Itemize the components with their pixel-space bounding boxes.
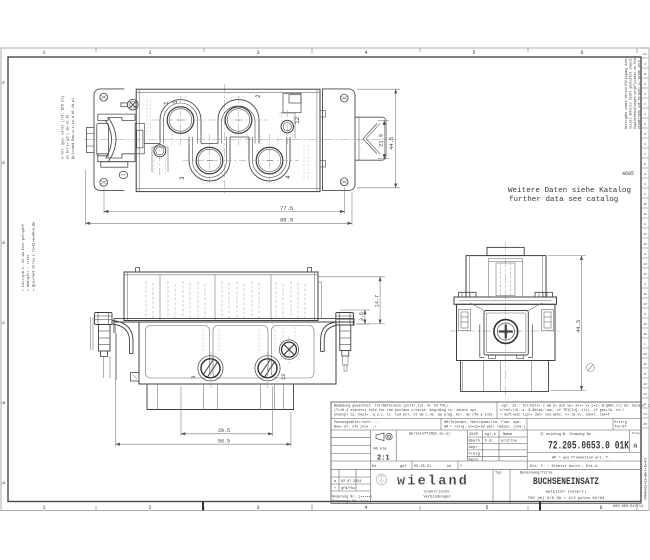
svg-text:6: 6 xyxy=(580,50,583,56)
svg-text:Bearb: Bearb xyxy=(469,439,481,444)
svg-text:3.5: 3.5 xyxy=(359,312,365,321)
svg-text:3: 3 xyxy=(644,93,646,96)
svg-text:a: a xyxy=(334,480,336,484)
svg-text:Passungsable•/schl. ...: Passungsable•/schl. ... xyxy=(334,420,381,425)
svg-text:Ed: Ed xyxy=(372,464,376,469)
svg-text:11: 11 xyxy=(643,213,647,216)
svg-text:further data see catalog: further data see catalog xyxy=(509,196,618,204)
svg-text:E: E xyxy=(644,163,646,166)
svg-text:29.5: 29.5 xyxy=(218,428,230,434)
svg-text:4: 4 xyxy=(364,505,367,511)
svg-text:23: 23 xyxy=(643,393,647,396)
svg-text:a: a xyxy=(633,443,638,451)
svg-text:Urspr: Urspr xyxy=(632,432,641,435)
svg-text:F: F xyxy=(644,193,646,196)
svg-text:25: 25 xyxy=(643,423,647,426)
svg-text:einger•gen ist ze wid• v. w•ge: einger•gen ist ze wid• v. w•gen verk xyxy=(637,60,641,129)
svg-text:M: M xyxy=(644,373,646,376)
svg-text:(T=±0.4 starker) tole for the: (T=±0.4 starker) tole for the povlaue c/… xyxy=(334,408,476,413)
svg-text:F1: F1 xyxy=(643,53,647,56)
svg-text:H: H xyxy=(644,253,646,256)
svg-text:L: L xyxy=(644,343,646,346)
svg-text:20: 20 xyxy=(643,353,647,356)
svg-text:Freig: Freig xyxy=(469,452,480,457)
svg-text:GB=Toleranz, Hohlraumk•ltw. fl: GB=Toleranz, Hohlraumk•ltw. flan. npw. xyxy=(444,420,521,425)
svg-text:Änderung Nr. (•••••): Änderung Nr. (•••••) xyxy=(332,495,373,500)
svg-text:F: F xyxy=(3,82,6,86)
svg-text:2:1: 2:1 xyxy=(377,455,390,463)
svg-text:B: B xyxy=(3,402,6,406)
svg-text:12: 12 xyxy=(643,233,647,236)
svg-text:24: 24 xyxy=(643,413,647,416)
svg-text:F.K.: F.K. xyxy=(485,440,494,444)
svg-text:15: 15 xyxy=(643,273,647,276)
svg-text:1: 1 xyxy=(42,505,45,511)
svg-text:C: C xyxy=(3,322,6,326)
svg-text:GM = •sv•g. un•sp•ed well radi: GM = •sv•g. un•sp•ed well radius. (Cnm.) xyxy=(444,425,525,430)
svg-text:AP = aus Produktion ers. f.: AP = aus Produktion ers. f. xyxy=(552,455,610,460)
svg-text:geľ: geľ xyxy=(400,464,407,469)
svg-text:K: K xyxy=(644,313,646,316)
svg-text:Weit•gabe sowie Vervielfältigu: Weit•gabe sowie Vervielfältigung dies• xyxy=(624,56,628,129)
svg-text:90.5: 90.5 xyxy=(280,217,293,224)
svg-text:19: 19 xyxy=(643,333,647,336)
svg-text:für/Ef: für/Ef xyxy=(615,425,627,430)
svg-text:⊜ Tol. gew. wirkt (ref. DIN el: ⊜ Tol. gew. wirkt (ref. DIN el) xyxy=(61,96,66,159)
svg-text:9: 9 xyxy=(644,183,646,186)
svg-text:6: 6 xyxy=(599,505,602,511)
svg-text:sgl.b: sgl.b xyxy=(485,432,497,437)
svg-text:05.25.21: 05.25.21 xyxy=(414,465,431,469)
svg-text:6: 6 xyxy=(644,143,646,146)
svg-text:f: f xyxy=(460,464,462,469)
svg-text:G: G xyxy=(644,223,646,226)
svg-text:BUCHSENEINSATZ: BUCHSENEINSATZ xyxy=(533,476,599,488)
svg-text:t/ref•l/h. a. Β.Βblat/ ww•. cf: t/ref•l/h. a. Β.Βblat/ ww•. cf TPI(I/Q. … xyxy=(500,408,624,413)
svg-text:14: 14 xyxy=(643,263,647,266)
svg-text:B: B xyxy=(644,73,646,76)
svg-text:.: . xyxy=(485,458,487,462)
svg-text:Elektrische: Elektrische xyxy=(424,490,450,495)
svg-text:D: D xyxy=(3,242,6,246)
svg-text:5: 5 xyxy=(472,50,475,56)
svg-text:2: 2 xyxy=(148,505,151,511)
svg-text:2: 2 xyxy=(255,94,262,98)
svg-text:seines Inhalts nicht gestattet: seines Inhalts nicht gestattet soweit xyxy=(629,58,633,129)
svg-text:17: 17 xyxy=(643,303,647,306)
svg-text:C9040323•01•GA•T•Iw•P1: C9040323•01•GA•T•Iw•P1 xyxy=(644,458,648,500)
svg-text:21.5: 21.5 xyxy=(378,134,385,147)
svg-text:5: 5 xyxy=(485,505,488,511)
svg-text:Werkstoff(Mat.sp.a): Werkstoff(Mat.sp.a) xyxy=(409,432,450,437)
svg-text:• Qca•rund Ver•u.s.ta•bl•w•Sm•: • Qca•rund Ver•u.s.ta•bl•w•Sm•u.Gw xyxy=(32,222,37,291)
svg-text:16: 16 xyxy=(643,293,647,296)
svg-text:21: 21 xyxy=(643,363,647,366)
svg-text:44.5: 44.5 xyxy=(575,320,582,333)
svg-text:7: 7 xyxy=(644,153,646,156)
svg-text:14.7: 14.7 xyxy=(375,295,381,307)
svg-text:3: 3 xyxy=(256,50,259,56)
svg-text:gfm/fbu: gfm/fbu xyxy=(341,486,355,491)
svg-text:1: 1 xyxy=(172,100,179,104)
svg-text:000-000-017/11: 000-000-017/11 xyxy=(613,504,643,509)
svg-text:.: . xyxy=(333,473,335,477)
svg-text:4: 4 xyxy=(364,50,367,56)
svg-text:C: C xyxy=(644,103,646,106)
svg-text:Ⓢ zeichng.N. Drawing No.: Ⓢ zeichng.N. Drawing No. xyxy=(540,431,593,437)
svg-text:12: 12 xyxy=(294,116,301,124)
svg-text:erstlne: erstlne xyxy=(501,439,518,444)
svg-text:44.5: 44.5 xyxy=(388,137,395,150)
svg-text:1: 1 xyxy=(42,50,45,56)
svg-text:8: 8 xyxy=(644,173,646,176)
svg-text:2025: 2025 xyxy=(469,433,479,437)
svg-text:ul brtl• gd c aw el bl: ul brtl• gd c aw el bl xyxy=(66,114,71,159)
svg-text:Erst•g: Erst•g xyxy=(615,420,627,425)
svg-text:A: A xyxy=(3,482,6,486)
svg-text:Ab.kla: Ab.kla xyxy=(374,447,388,452)
svg-text:D: D xyxy=(644,133,646,136)
svg-text:Typ: Typ xyxy=(495,472,501,476)
svg-text:13: 13 xyxy=(643,243,647,246)
svg-text:1: 1 xyxy=(644,63,646,66)
svg-text:720 (m) 4/0 SA + 4/2 polen 02/: 720 (m) 4/0 SA + 4/2 polen 02/04 xyxy=(528,496,605,501)
svg-text:Ers. f. : Ersetzt durch : Ers: Ers. f. : Ersetzt durch : Ers.d. xyxy=(530,464,599,469)
svg-text:10: 10 xyxy=(643,203,647,206)
svg-text:Norm: Norm xyxy=(469,457,479,462)
svg-text:Verbindungen: Verbindungen xyxy=(423,495,450,500)
svg-text:ke: ke xyxy=(447,464,451,469)
svg-text:Gepr: Gepr xyxy=(469,445,478,450)
svg-text:Bemaßung gewichtet. Tol/Refere: Bemaßung gewichtet. Tol/Reference (poltr… xyxy=(334,404,450,409)
svg-text:• Löt•rg•b.c. bl.Wu.Ess•.pol•g: • Löt•rg•b.c. bl.Wu.Ess•.pol•gd•f xyxy=(21,224,26,291)
svg-text:J: J xyxy=(644,283,646,286)
svg-text:5: 5 xyxy=(644,123,646,126)
svg-text:18: 18 xyxy=(643,323,647,326)
svg-text:02.07.2024: 02.07.2024 xyxy=(341,480,361,484)
svg-text:.: . xyxy=(501,458,503,462)
svg-text:Benennung/Title: Benennung/Title xyxy=(520,471,552,476)
svg-text:2: 2 xyxy=(644,83,646,86)
svg-text:utensp• ta. Deci•. a.u.c. tc.: utensp• ta. Deci•. a.u.c. tc. tod pol. o… xyxy=(334,413,493,418)
svg-text:Änderungs-Nr. u.••: Änderungs-Nr. u.•• xyxy=(332,499,369,504)
svg-text:wieland: wieland xyxy=(397,475,469,490)
svg-text:• duft•wic tipl• duc• con.wehc: • duft•wic tipl• duc• con.wehc. v• ta.vc… xyxy=(500,413,610,418)
svg-text:Bea• ef. ufo pro•. .•: Bea• ef. ufo pro•. .• xyxy=(334,425,377,430)
svg-text:Weitere Daten siehe Katalog: Weitere Daten siehe Katalog xyxy=(508,187,631,195)
svg-text:22: 22 xyxy=(643,383,647,386)
svg-text:3: 3 xyxy=(256,505,259,511)
svg-text:1: 1 xyxy=(163,101,170,105)
svg-text:E: E xyxy=(3,162,6,166)
svg-text:4685: 4685 xyxy=(622,171,634,177)
svg-text:+: + xyxy=(334,487,336,491)
svg-text:→spr. 22 : tol/mitt• c am p• a: →spr. 22 : tol/mitt• c am p• ach se• sn•… xyxy=(500,404,650,409)
svg-text:4: 4 xyxy=(285,175,292,179)
svg-text:3: 3 xyxy=(190,376,197,379)
svg-text:12: 12 xyxy=(280,373,287,380)
svg-text:77.5: 77.5 xyxy=(280,205,293,212)
svg-text:3: 3 xyxy=(179,176,186,180)
svg-text:4: 4 xyxy=(644,113,646,116)
svg-text:56.5: 56.5 xyxy=(218,439,230,445)
svg-text:Qcl•rund Bew.u.s.ta.u.bl.th.wl: Qcl•rund Bew.u.s.ta.u.bl.th.wl xyxy=(71,98,76,159)
svg-text:Name: Name xyxy=(503,433,513,437)
svg-text:weiblich (insert): weiblich (insert) xyxy=(546,490,587,495)
svg-text:• möd•gfc• : •r•b•: • möd•gfc• : •r•b• xyxy=(26,254,31,291)
svg-text:2: 2 xyxy=(148,50,151,56)
svg-text:72.205.0653.0 01K: 72.205.0653.0 01K xyxy=(548,441,629,453)
